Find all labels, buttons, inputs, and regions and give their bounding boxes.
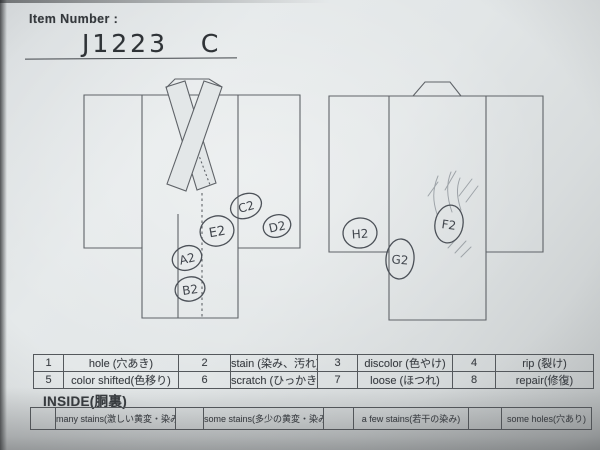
defect-label: discolor (色やけ) — [358, 355, 453, 372]
back-collar — [413, 82, 461, 96]
defect-code: 8 — [453, 372, 496, 389]
defect-label: hole (穴あき) — [64, 355, 179, 372]
mark-a2-label: A2 — [178, 250, 197, 267]
mark-c2: C2 — [227, 189, 266, 224]
mark-e2: E2 — [197, 212, 237, 249]
pencil-scribbles — [428, 171, 478, 257]
inside-option-label: many stains(激しい黄変・染み) — [56, 408, 176, 430]
defect-label: rip (裂け) — [496, 355, 594, 372]
inside-option-label: a few stains(若干の染み) — [354, 408, 469, 430]
defect-label: repair(修復) — [496, 372, 594, 389]
inside-checkbox-cell — [176, 408, 204, 430]
front-defect-marks: A2 B2 C2 D2 E2 — [169, 189, 294, 304]
defect-label: loose (ほつれ) — [358, 372, 453, 389]
inside-checkbox-cell — [31, 408, 56, 430]
defect-table-row-2: 5 color shifted(色移り) 6 scratch (ひっかき傷) 7… — [34, 372, 594, 389]
defect-table-row-1: 1 hole (穴あき) 2 stain (染み、汚れ) 3 discolor … — [34, 355, 594, 372]
defect-label: scratch (ひっかき傷) — [231, 372, 318, 389]
mark-h2-label: H2 — [351, 226, 369, 241]
inside-option-label: some stains(多少の黄変・染み) — [204, 408, 324, 430]
mark-f2-label: F2 — [441, 217, 457, 233]
defect-code: 3 — [318, 355, 358, 372]
defect-code-table: 1 hole (穴あき) 2 stain (染み、汚れ) 3 discolor … — [33, 354, 594, 389]
inside-checkbox-cell — [469, 408, 502, 430]
defect-label: color shifted(色移り) — [64, 372, 179, 389]
inside-table-row: many stains(激しい黄変・染み) some stains(多少の黄変・… — [31, 408, 592, 430]
defect-code: 6 — [179, 372, 231, 389]
defect-label: stain (染み、汚れ) — [231, 355, 318, 372]
mark-d2-label: D2 — [267, 218, 286, 235]
back-defect-marks: F2 G2 H2 — [342, 203, 466, 280]
defect-code: 2 — [179, 355, 231, 372]
inside-checkbox-cell — [324, 408, 354, 430]
mark-b2-label: B2 — [181, 282, 199, 298]
kimono-back-view — [329, 82, 543, 320]
inside-condition-table: many stains(激しい黄変・染み) some stains(多少の黄変・… — [30, 407, 592, 430]
defect-code: 1 — [34, 355, 64, 372]
mark-g2-label: G2 — [391, 252, 409, 267]
defect-code: 4 — [453, 355, 496, 372]
mark-e2-label: E2 — [208, 224, 227, 242]
mark-d2: D2 — [260, 211, 293, 241]
mark-c2-label: C2 — [237, 198, 256, 216]
back-outline — [329, 96, 543, 320]
defect-code: 5 — [34, 372, 64, 389]
mark-a2: A2 — [169, 242, 205, 275]
inside-option-label: some holes(穴あり) — [502, 408, 592, 430]
condition-sheet-photo: Item Number : J1223 C — [0, 0, 600, 450]
defect-code: 7 — [318, 372, 358, 389]
mark-h2: H2 — [342, 217, 378, 250]
